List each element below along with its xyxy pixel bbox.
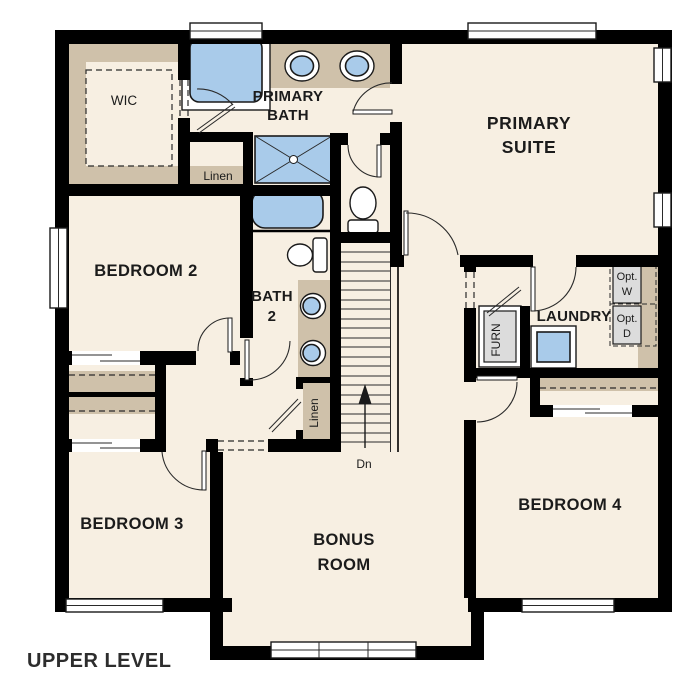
floor-plan-page: WIC PRIMARY BATH PRIMARY SUITE BEDROOM 2…	[0, 0, 687, 687]
linen-hall-label: Linen	[307, 398, 321, 427]
water-closet-door-leaf	[377, 145, 381, 177]
bonus-label-line2: ROOM	[318, 556, 371, 574]
window-primary-bath	[190, 23, 262, 39]
furnace-label: FURN	[489, 323, 503, 356]
wic-shelf-left	[69, 44, 86, 184]
bonus-label-line1: BONUS	[313, 531, 375, 549]
window-primary-suite	[468, 23, 596, 39]
window-suite-right-upper	[654, 48, 671, 82]
bedroom4-label: BEDROOM 4	[518, 496, 622, 514]
primary-suite-label-line2: SUITE	[502, 137, 557, 157]
primary-bath-label-line1: PRIMARY	[253, 88, 324, 105]
linen-bath-label: Linen	[203, 169, 232, 183]
bedroom4-closet-sliding-door	[553, 405, 632, 417]
bedroom4-closet-shelf	[540, 378, 658, 391]
primary-suite-door-leaf	[404, 211, 408, 255]
laundry-label: LAUNDRY	[537, 308, 612, 325]
window-suite-right-lower	[654, 193, 671, 227]
bedroom2-label: BEDROOM 2	[94, 262, 198, 280]
laundry-sink	[537, 332, 570, 362]
bath2-label-line2: 2	[268, 308, 277, 325]
primary-bath-door-leaf	[353, 110, 392, 114]
bedroom3-closet-sliding-door	[72, 439, 140, 452]
primary-shower	[255, 136, 332, 183]
bedroom3-door-leaf	[202, 451, 206, 490]
primary-bathtub	[190, 39, 262, 102]
stairs-dn-label: Dn	[356, 457, 371, 471]
window-bedroom2	[50, 228, 67, 308]
bedroom2-door-leaf	[228, 318, 232, 352]
window-bonus	[271, 642, 416, 658]
primary-bath-label-line2: BATH	[267, 107, 309, 124]
bedroom2-closet-shelf	[69, 371, 157, 392]
bedroom3-label: BEDROOM 3	[80, 515, 184, 533]
wic-label: WIC	[111, 93, 137, 108]
opt-dryer-label-line2: D	[623, 328, 631, 340]
window-bedroom4	[522, 599, 614, 612]
window-bedroom3	[66, 599, 163, 612]
opt-washer-label-line1: Opt.	[617, 271, 638, 283]
laundry-door-leaf	[531, 267, 535, 311]
primary-suite-label-line1: PRIMARY	[487, 113, 571, 133]
bath2-door-leaf	[245, 340, 249, 380]
opt-washer-label-line2: W	[622, 286, 633, 298]
primary-toilet	[348, 187, 378, 233]
bedroom4-door-leaf	[477, 376, 517, 380]
page-title: UPPER LEVEL	[27, 650, 171, 672]
bath2-label-line1: BATH	[251, 288, 293, 305]
floor-plan: WIC PRIMARY BATH PRIMARY SUITE BEDROOM 2…	[0, 0, 687, 687]
bedroom2-closet-sliding-door	[72, 351, 140, 365]
opt-dryer-label-line1: Opt.	[617, 313, 638, 325]
wic-shelf-bottom	[69, 166, 178, 184]
